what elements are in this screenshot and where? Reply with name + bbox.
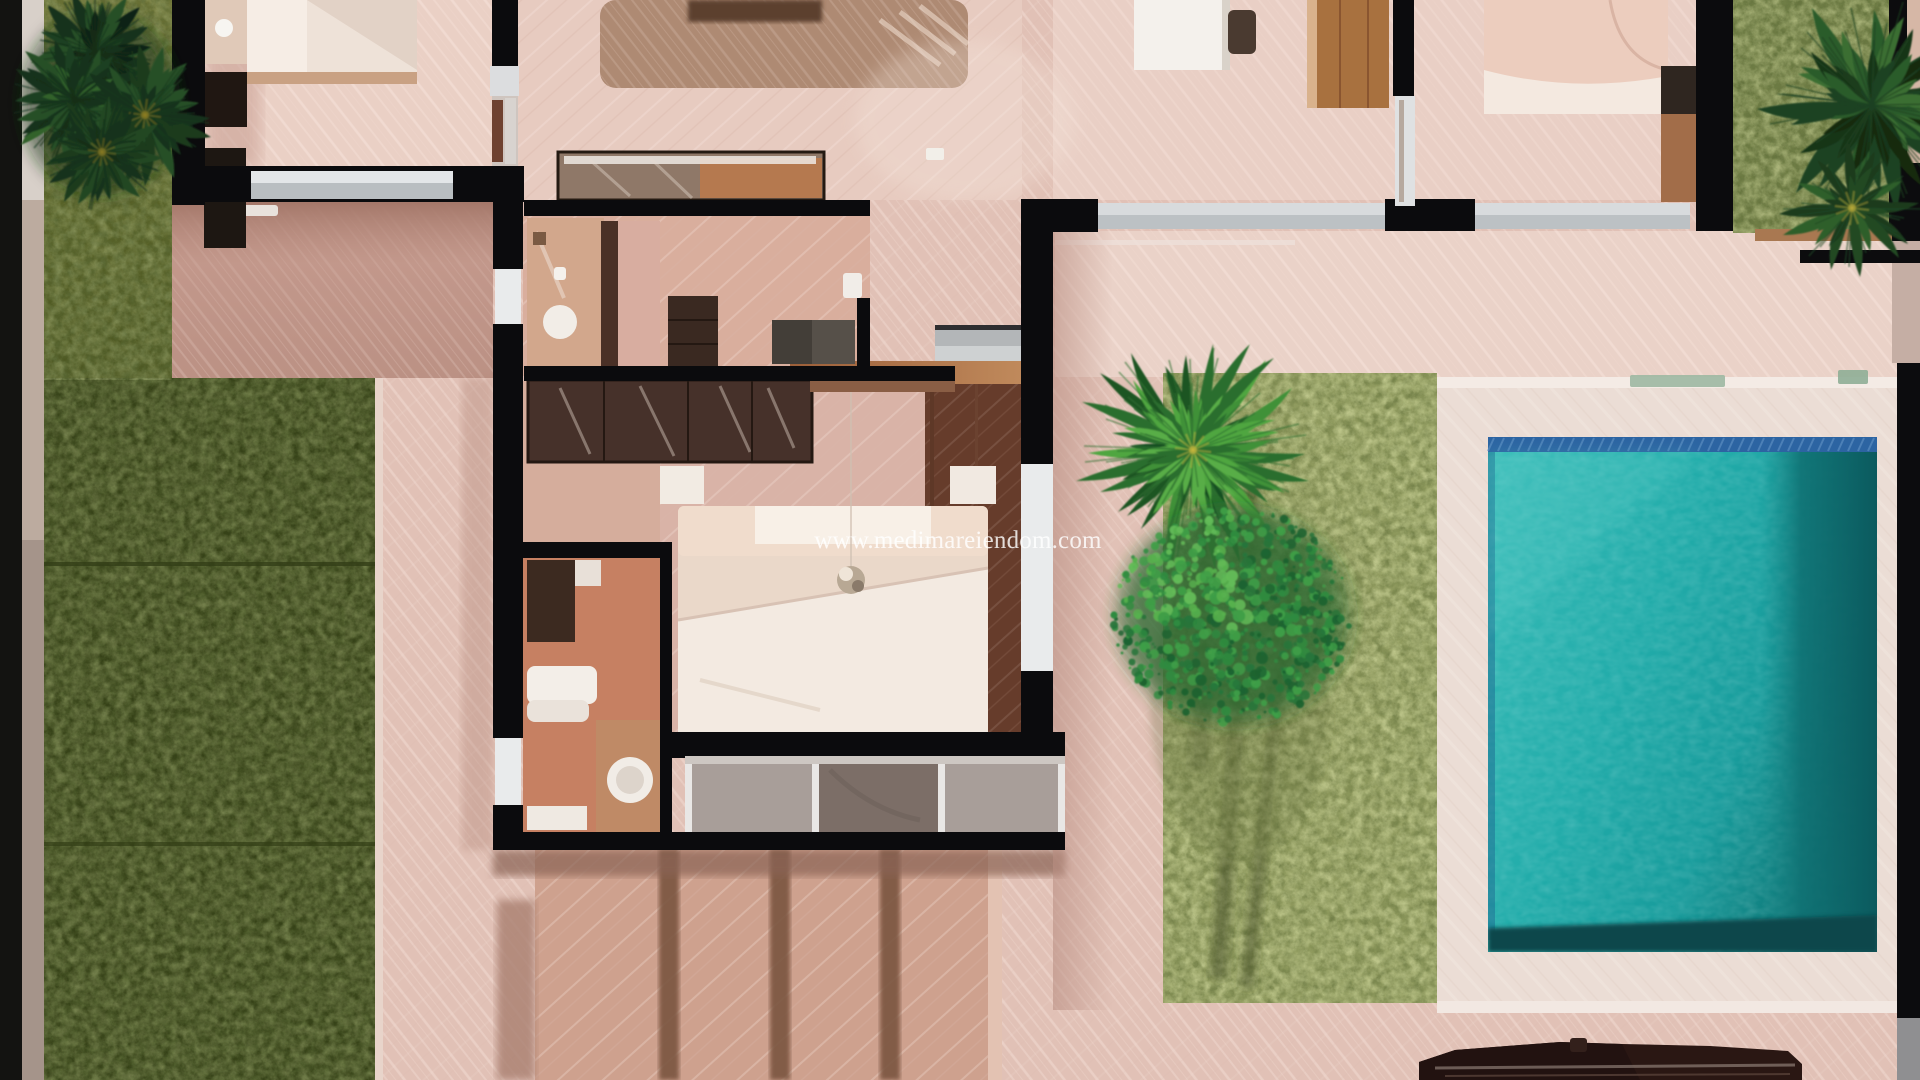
svg-text:www.medimareiendom.com: www.medimareiendom.com — [814, 527, 1102, 554]
